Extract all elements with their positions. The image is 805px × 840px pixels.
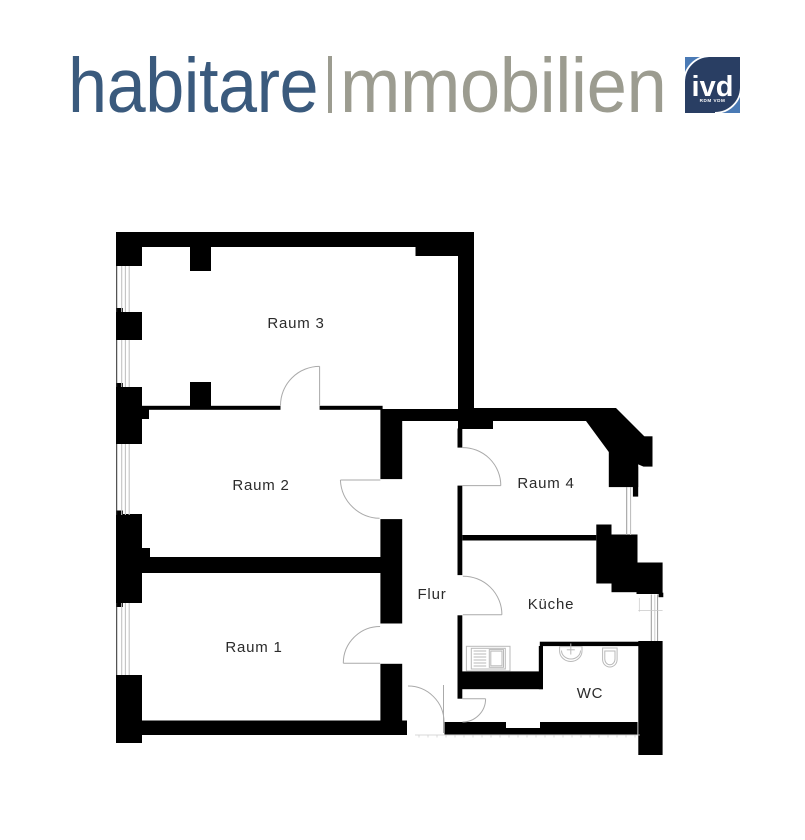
svg-text:Raum 3: Raum 3 — [267, 315, 324, 332]
svg-text:Flur: Flur — [417, 586, 446, 603]
svg-text:Raum 1: Raum 1 — [225, 639, 282, 656]
svg-text:Raum 2: Raum 2 — [232, 477, 289, 494]
svg-text:Raum 4: Raum 4 — [517, 475, 574, 492]
svg-text:WC: WC — [577, 685, 604, 702]
svg-text:Küche: Küche — [528, 596, 575, 613]
